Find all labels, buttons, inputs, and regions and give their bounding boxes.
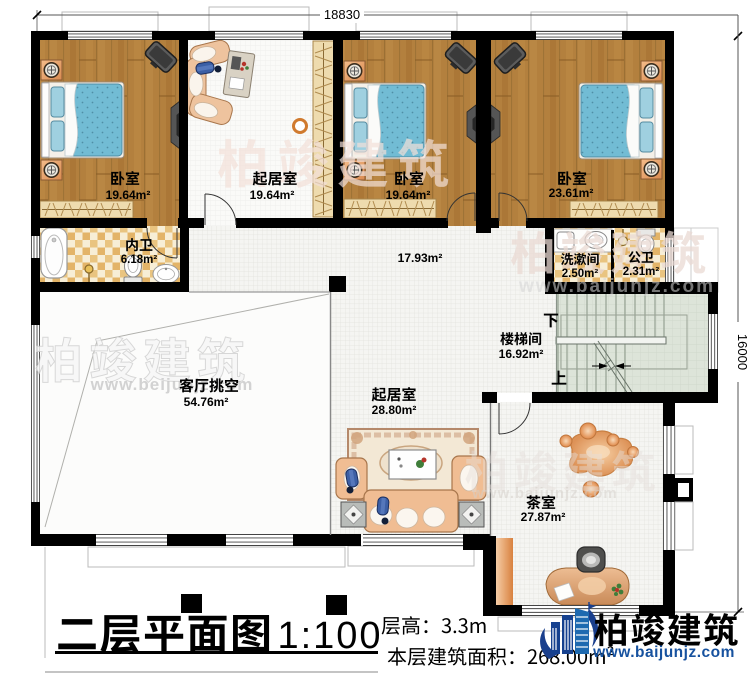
- svg-text:23.61m²: 23.61m²: [549, 186, 594, 200]
- svg-text:2.31m²: 2.31m²: [623, 266, 660, 278]
- svg-text:16000: 16000: [735, 334, 750, 370]
- svg-text:54.76m²: 54.76m²: [184, 395, 229, 409]
- svg-text:17.93m²: 17.93m²: [398, 251, 443, 265]
- svg-text:www.baijunjz.com: www.baijunjz.com: [592, 644, 735, 661]
- svg-text:www.baijunjz.com: www.baijunjz.com: [518, 276, 715, 297]
- svg-text:6.18m²: 6.18m²: [121, 254, 158, 266]
- svg-text:28.80m²: 28.80m²: [372, 403, 417, 417]
- svg-text:18830: 18830: [324, 7, 360, 22]
- svg-text:16.92m²: 16.92m²: [499, 347, 544, 361]
- svg-text:19.64m²: 19.64m²: [386, 188, 431, 202]
- svg-text:1:100: 1:100: [277, 615, 382, 657]
- svg-text:2.50m²: 2.50m²: [562, 268, 599, 280]
- svg-text:19.64m²: 19.64m²: [106, 188, 151, 202]
- svg-text:27.87m²: 27.87m²: [521, 510, 566, 524]
- svg-text:19.64m²: 19.64m²: [250, 188, 295, 202]
